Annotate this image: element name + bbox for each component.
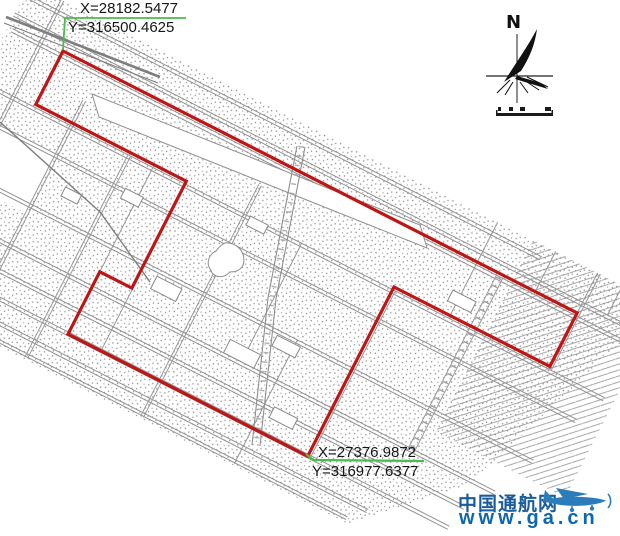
- north-arrow-icon: [486, 29, 553, 103]
- scale-bar: [496, 107, 553, 116]
- coordinate-label-1-y: Y=316500.4625: [68, 20, 174, 36]
- coordinate-label-1-x: X=28182.5477: [80, 1, 178, 17]
- airplane-icon: [542, 486, 618, 516]
- coordinate-label-2-x: X=27376.9872: [318, 445, 416, 461]
- site-map: [0, 0, 620, 536]
- north-label: N: [506, 12, 521, 33]
- map-viewer: X=28182.5477 Y=316500.4625 X=27376.9872 …: [0, 0, 620, 536]
- coordinate-label-2-y: Y=316977.6377: [312, 464, 418, 480]
